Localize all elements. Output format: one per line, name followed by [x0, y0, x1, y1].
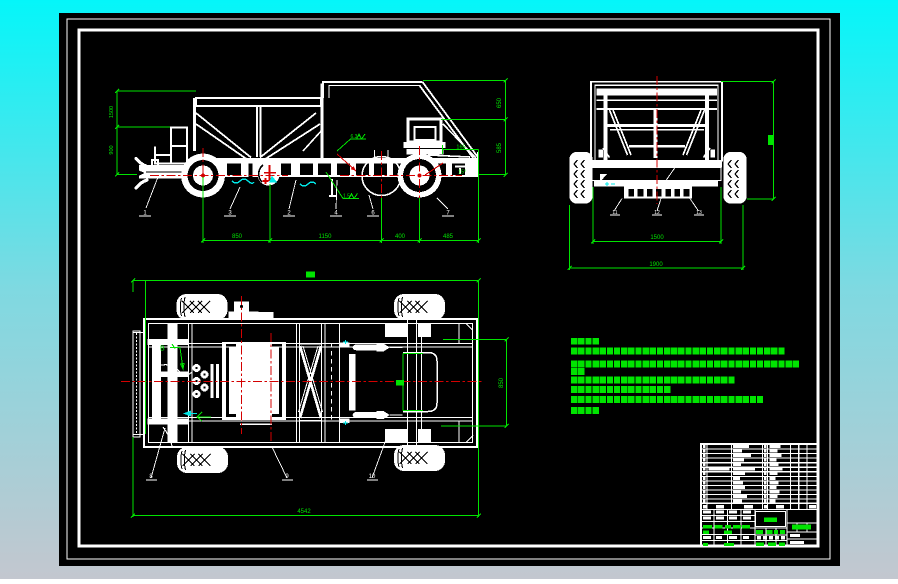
- svg-text:650: 650: [497, 97, 503, 108]
- svg-text:11: 11: [612, 210, 617, 216]
- svg-text:10: 10: [369, 474, 376, 480]
- svg-text:4542: 4542: [297, 509, 311, 515]
- svg-text:1150: 1150: [319, 234, 333, 240]
- svg-text:165: 165: [456, 145, 465, 151]
- svg-text:13: 13: [696, 210, 702, 216]
- svg-text:1900: 1900: [649, 262, 663, 268]
- svg-text:B: B: [160, 346, 165, 353]
- svg-text:1500: 1500: [650, 235, 664, 241]
- svg-text:400: 400: [395, 234, 406, 240]
- svg-text:850: 850: [499, 377, 505, 388]
- svg-text:850: 850: [232, 234, 243, 240]
- svg-text:485: 485: [443, 234, 454, 240]
- svg-text:900: 900: [109, 145, 115, 154]
- svg-text:585: 585: [497, 142, 503, 153]
- svg-text:12: 12: [654, 210, 660, 216]
- svg-text:15°: 15°: [458, 170, 466, 176]
- svg-text:1500: 1500: [109, 106, 115, 118]
- svg-text:1.5: 1.5: [343, 194, 350, 200]
- svg-text:6.3: 6.3: [351, 134, 358, 140]
